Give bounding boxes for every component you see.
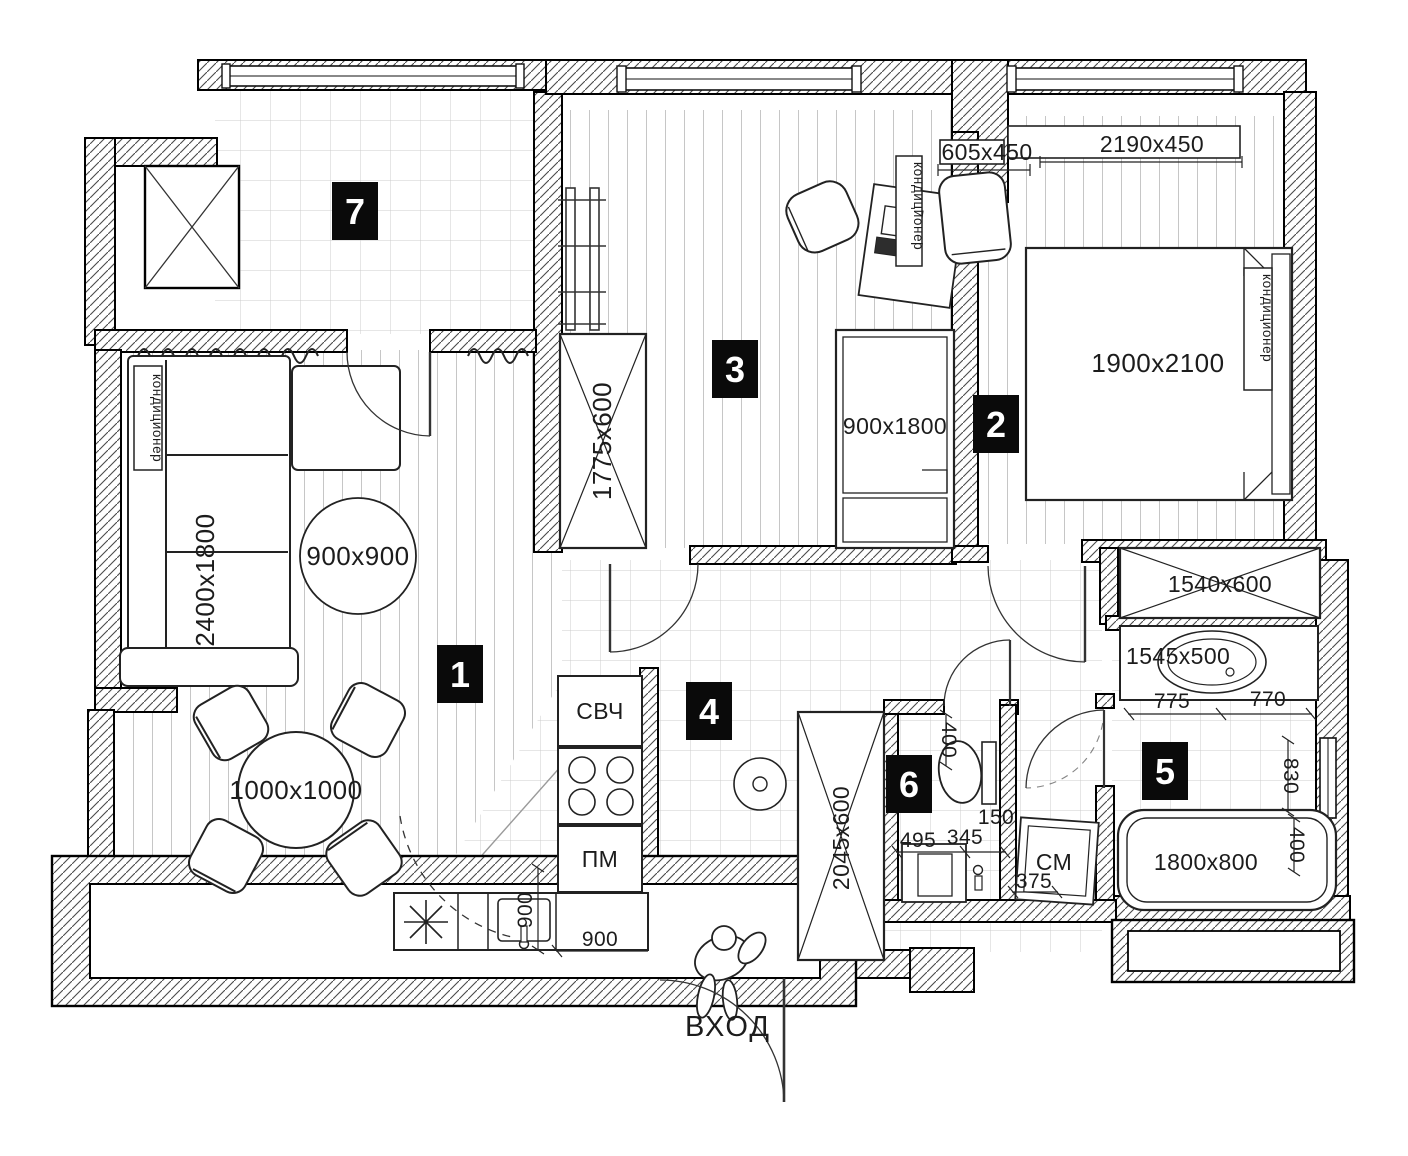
dim-345: 345 [947,826,983,849]
ac-label-bedroom3: кондиционер [911,162,926,250]
shelf-long-label: 2190x450 [1100,131,1204,157]
hob-burner [569,757,595,783]
room-badge-7: 7 [332,182,378,240]
vanity-label: 1545x500 [1126,643,1230,669]
dim-400-bath: 400 [1285,827,1308,863]
room-badge-3: 3 [712,340,758,398]
badge-label-7: 7 [345,191,365,232]
room-badge-4: 4 [686,682,732,740]
room-badge-2: 2 [973,395,1019,453]
closet-hall-label: 1540x600 [1168,571,1272,597]
microwave-label: СВЧ [576,698,623,724]
badge-label-3: 3 [725,349,745,390]
window-bath [1320,738,1336,818]
ceiling-light [734,758,786,810]
wardrobe-hall-label: 2045x600 [828,786,854,890]
badge-label-6: 6 [899,764,919,805]
hob-burner [607,789,633,815]
floor-plan: 1 2 3 4 5 6 7 2400x1800 900x900 1000x100… [0,0,1408,1156]
room-badge-6: 6 [886,755,932,813]
rug-label: 900x900 [306,541,409,571]
bed3-label: 900x1800 [843,413,947,439]
badge-label-4: 4 [699,691,719,732]
room-badge-1: 1 [437,645,483,703]
badge-label-1: 1 [450,654,470,695]
shelf-small-label: 605x450 [941,139,1032,165]
dim-775: 775 [1154,690,1190,713]
dim-375: 375 [1016,870,1052,893]
cooktop-symbol [404,900,448,944]
ac-label-living: кондиционер [150,374,165,462]
armchair [938,171,1013,265]
bed-room3 [836,330,954,548]
badge-label-5: 5 [1155,751,1175,792]
dining-table-label: 1000x1000 [229,775,362,805]
vent-shaft [145,166,239,288]
sofa-label: 2400x1800 [190,513,220,646]
window-bedroom2 [1007,66,1243,92]
dim-770: 770 [1250,688,1286,711]
dim-900-v: 900 [514,892,537,928]
bed2-label: 1900x2100 [1091,348,1224,378]
window-bedroom3 [617,66,861,92]
hob-burner [569,789,595,815]
bathtub-label: 1800x800 [1154,849,1258,875]
badge-label-2: 2 [986,404,1006,445]
window-balcony [222,64,524,88]
dishwasher-label: ПМ [582,846,619,872]
ac-label-bedroom2: кондиционер [1260,274,1275,362]
dim-495: 495 [900,829,936,852]
dim-900-h: 900 [582,928,618,951]
entrance-label: ВХОД [685,1011,771,1043]
dim-400-wc: 400 [937,722,960,758]
hob-burner [607,757,633,783]
dim-830: 830 [1279,758,1302,794]
floor-plan-drawing: 1 2 3 4 5 6 7 2400x1800 900x900 1000x100… [0,0,1408,1156]
room-badge-5: 5 [1142,742,1188,800]
wardrobe3-label: 1775x600 [587,382,617,500]
dim-150: 150 [978,806,1014,829]
